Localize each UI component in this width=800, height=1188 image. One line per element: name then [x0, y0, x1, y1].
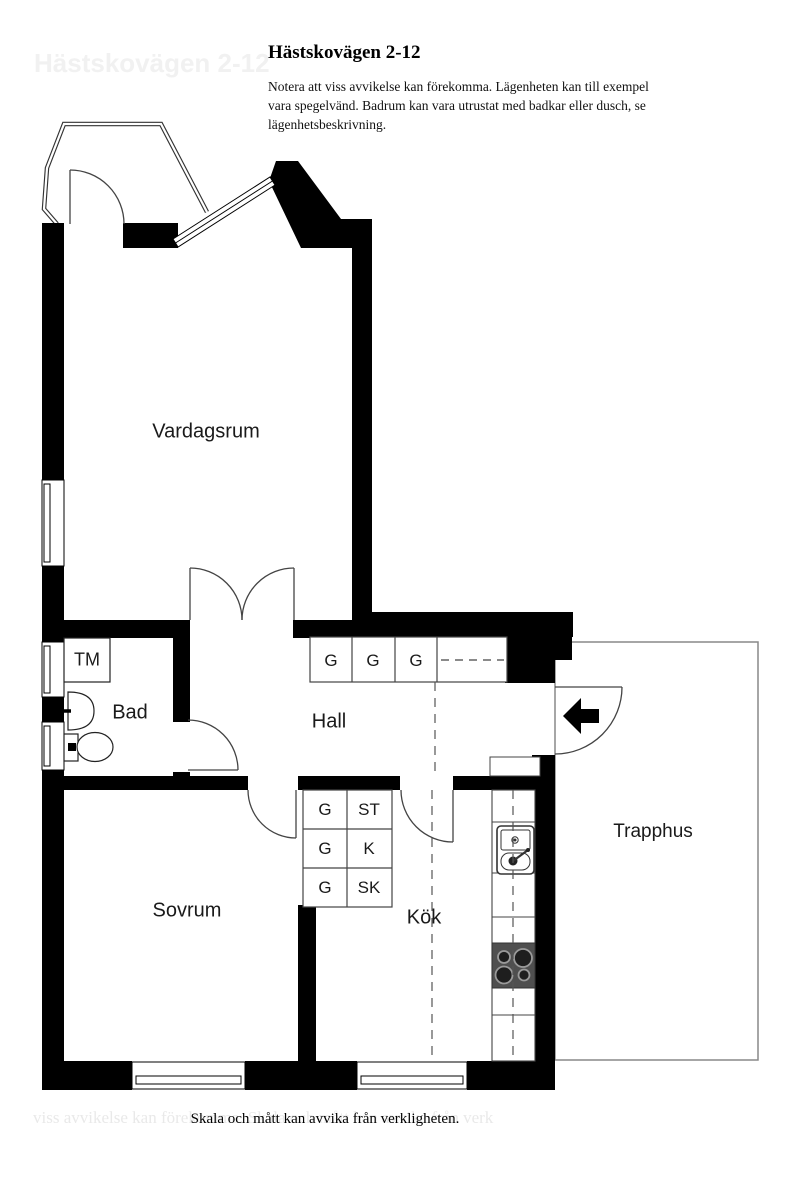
label-cabinet-g-top: G	[318, 800, 331, 820]
label-cabinet-k: K	[363, 839, 374, 859]
wall-top	[123, 223, 178, 248]
burner-icon	[498, 951, 510, 963]
burner-icon	[514, 949, 532, 967]
label-closet-g1: G	[324, 651, 337, 671]
kok-door	[401, 790, 453, 842]
window-vardagsrum-left	[42, 480, 64, 566]
floor-plan-svg	[0, 0, 800, 1188]
wall-hall-top	[367, 612, 573, 637]
burner-icon	[496, 967, 513, 984]
bathroom-sink	[68, 692, 94, 730]
window-bad-left-2	[42, 722, 64, 770]
label-sovrum: Sovrum	[153, 900, 222, 923]
wall-diagonal	[269, 161, 372, 248]
window-diagonal	[173, 177, 275, 247]
wall-kok-top	[453, 776, 540, 790]
toilet	[64, 733, 113, 762]
wall-bad-hall	[173, 637, 190, 722]
trapphus-outline	[555, 642, 758, 1060]
wall-left-bad	[42, 697, 64, 722]
burner-icon	[519, 970, 530, 981]
label-vardagsrum: Vardagsrum	[152, 421, 259, 444]
label-kok: Kök	[407, 907, 441, 930]
wall-entry-ear	[555, 637, 572, 660]
wall-vardagsrum-bottom-right	[293, 620, 369, 638]
label-cabinet-sk: SK	[358, 878, 381, 898]
label-cabinet-st: ST	[358, 800, 380, 820]
wall-entry-block	[505, 637, 555, 683]
label-trapphus: Trapphus	[613, 821, 693, 843]
window-sovrum-bottom	[132, 1062, 245, 1089]
wall-bottom-b	[245, 1061, 357, 1090]
sovrum-door	[248, 790, 296, 838]
wall-bottom-c	[467, 1061, 555, 1090]
label-hall: Hall	[312, 711, 346, 734]
label-closet-g2: G	[366, 651, 379, 671]
window-kok-bottom	[357, 1062, 467, 1089]
balcony-door	[70, 170, 124, 224]
scale-disclaimer: Skala och mått kan avvika från verklighe…	[191, 1111, 460, 1128]
wall-sovrum-kok	[298, 905, 316, 1063]
wall-left-lower	[42, 770, 64, 1090]
doors	[70, 170, 622, 842]
wall-cabinet-top	[298, 776, 400, 790]
balcony-outline	[44, 124, 207, 224]
label-bad: Bad	[112, 702, 148, 725]
wall-left-upper	[42, 223, 64, 480]
wall-hall-sovrum	[42, 776, 248, 790]
shaft-box	[490, 757, 540, 776]
window-bad-left-1	[42, 642, 64, 697]
kitchen-sink	[497, 826, 534, 874]
stove	[492, 943, 535, 988]
wall-vardagsrum-bottom-left	[42, 620, 190, 638]
vardagsrum-double-door	[190, 568, 294, 620]
floor-plan-page: Hästskovägen 2-12 viss avvikelse kan för…	[0, 0, 800, 1188]
wall-bottom-a	[42, 1061, 132, 1090]
label-closet-g3: G	[409, 651, 422, 671]
label-cabinet-g-mid: G	[318, 839, 331, 859]
wall-vardagsrum-right	[352, 248, 372, 620]
label-cabinet-g-bottom: G	[318, 878, 331, 898]
label-tm: TM	[74, 650, 100, 671]
bad-door	[188, 720, 238, 770]
